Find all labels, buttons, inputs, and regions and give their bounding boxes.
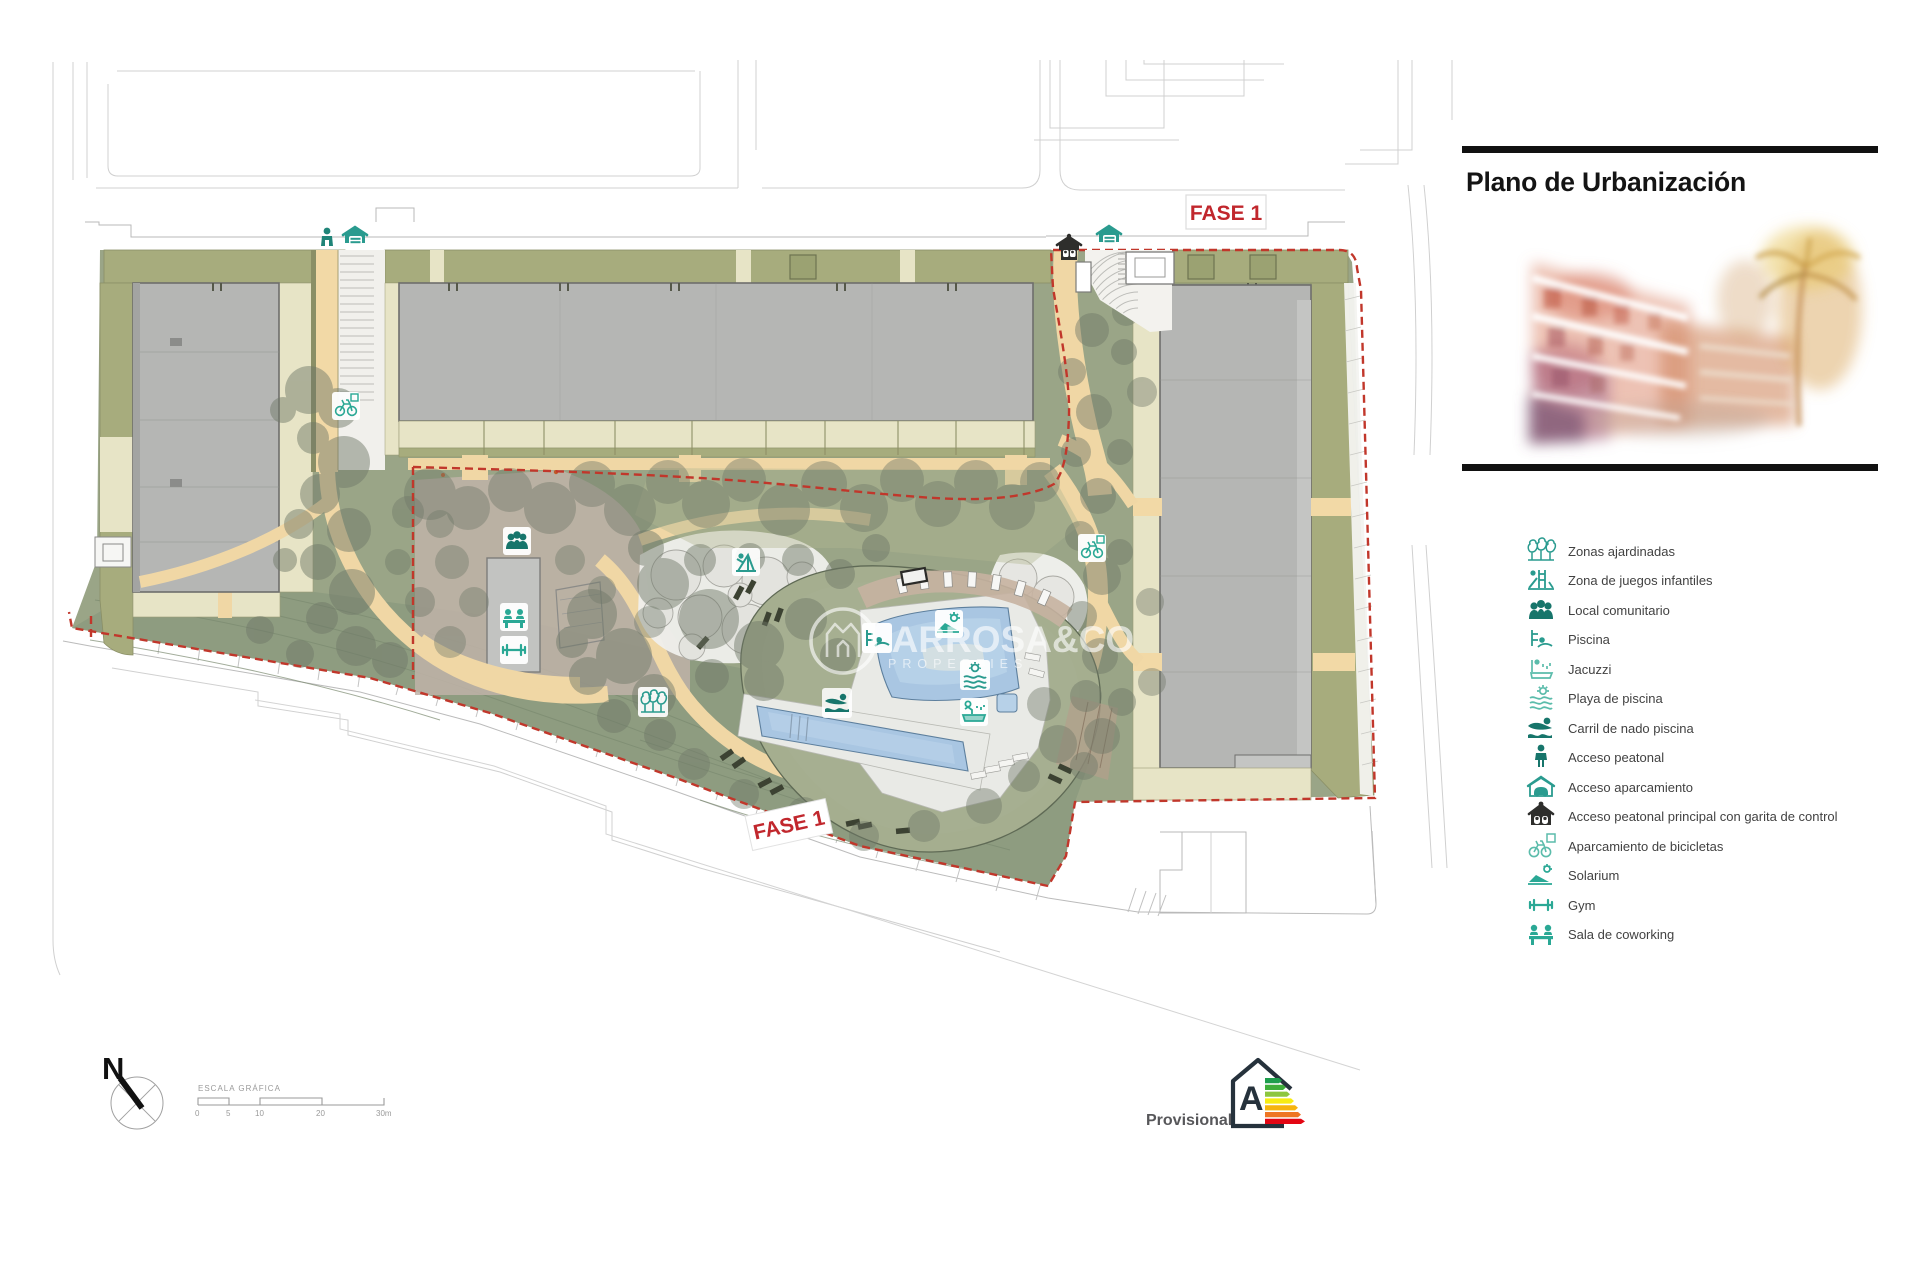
svg-text:Sala de coworking: Sala de coworking	[1568, 927, 1674, 942]
svg-text:Playa de piscina: Playa de piscina	[1568, 691, 1663, 706]
svg-text:LARROSA&CO: LARROSA&CO	[869, 619, 1134, 660]
svg-text:Carril de nado piscina: Carril de nado piscina	[1568, 721, 1695, 736]
svg-text:Plano de Urbanización: Plano de Urbanización	[1466, 167, 1746, 197]
svg-text:Zona de juegos infantiles: Zona de juegos infantiles	[1568, 573, 1713, 588]
svg-text:ESCALA GRÁFICA: ESCALA GRÁFICA	[198, 1084, 281, 1093]
svg-text:30m: 30m	[376, 1109, 392, 1118]
svg-text:Zonas ajardinadas: Zonas ajardinadas	[1568, 544, 1675, 559]
svg-text:A: A	[1239, 1080, 1264, 1118]
svg-text:PROPERTIES: PROPERTIES	[888, 657, 1028, 671]
svg-text:Local comunitario: Local comunitario	[1568, 603, 1670, 618]
svg-text:FASE 1: FASE 1	[1190, 202, 1263, 225]
svg-text:20: 20	[316, 1109, 325, 1118]
svg-text:10: 10	[255, 1109, 264, 1118]
svg-text:Gym: Gym	[1568, 898, 1595, 913]
svg-text:Provisional: Provisional	[1146, 1112, 1232, 1129]
svg-text:5: 5	[226, 1109, 231, 1118]
svg-text:N: N	[102, 1051, 124, 1086]
svg-text:0: 0	[195, 1109, 200, 1118]
svg-text:Jacuzzi: Jacuzzi	[1568, 662, 1611, 677]
svg-text:Acceso aparcamiento: Acceso aparcamiento	[1568, 780, 1693, 795]
svg-text:Piscina: Piscina	[1568, 632, 1611, 647]
svg-text:Aparcamiento de bicicletas: Aparcamiento de bicicletas	[1568, 839, 1724, 854]
svg-text:Acceso peatonal: Acceso peatonal	[1568, 750, 1664, 765]
svg-text:Acceso peatonal principal con: Acceso peatonal principal con garita de …	[1568, 809, 1838, 824]
svg-text:Solarium: Solarium	[1568, 868, 1619, 883]
